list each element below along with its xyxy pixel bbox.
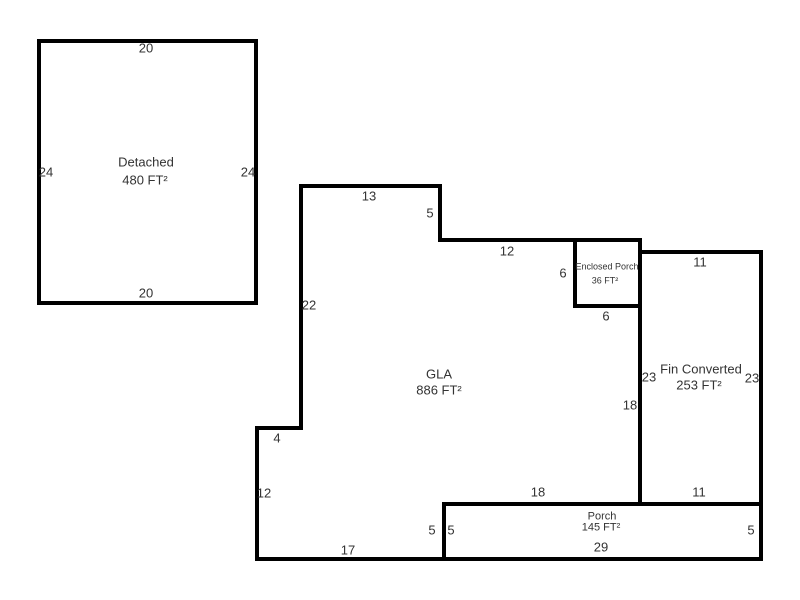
porch-dim-left: 5: [447, 524, 454, 537]
detached-area-label: 480 FT²: [122, 174, 168, 187]
enclosed-porch-dim-bottom: 6: [602, 310, 609, 323]
gla-dim-bottom-18: 18: [531, 486, 545, 499]
detached-dim-right: 24: [241, 166, 255, 179]
gla-dim-left-12: 12: [257, 487, 271, 500]
gla-dim-right-18: 18: [623, 399, 637, 412]
detached-dim-bottom: 20: [139, 287, 153, 300]
detached-dim-top: 20: [139, 42, 153, 55]
gla-dim-step-5: 5: [426, 207, 433, 220]
fin-converted-dim-left: 23: [642, 371, 656, 384]
enclosed-porch-outline: [575, 240, 640, 306]
gla-dim-top-12: 12: [500, 245, 514, 258]
fin-converted-dim-top: 11: [693, 256, 707, 269]
floorplan-sketch: 20 24 24 20 Detached 480 FT² 13 5 12 22 …: [0, 0, 800, 600]
enclosed-porch-dim-left: 6: [559, 267, 566, 280]
sketch-walls: [0, 0, 800, 600]
fin-converted-area-label: 253 FT²: [676, 379, 722, 392]
gla-name-label: GLA: [426, 368, 452, 381]
enclosed-porch-area-label: 36 FT²: [592, 277, 619, 286]
detached-dim-left: 24: [39, 166, 53, 179]
fin-converted-name-label: Fin Converted: [660, 363, 742, 376]
enclosed-porch-name-label: Enclosed Porch: [575, 263, 638, 272]
gla-dim-bottom-17: 17: [341, 544, 355, 557]
porch-dim-bottom: 29: [594, 541, 608, 554]
porch-dim-right: 5: [747, 524, 754, 537]
detached-name-label: Detached: [118, 156, 174, 169]
gla-dim-notch-4: 4: [273, 432, 280, 445]
fin-converted-dim-right: 23: [745, 372, 759, 385]
gla-area-label: 886 FT²: [416, 384, 462, 397]
fin-converted-dim-bottom: 11: [692, 486, 706, 499]
porch-area-label: 145 FT²: [582, 523, 621, 534]
gla-dim-top-13: 13: [362, 190, 376, 203]
gla-dim-left-22: 22: [302, 299, 316, 312]
gla-dim-right-5: 5: [428, 524, 435, 537]
